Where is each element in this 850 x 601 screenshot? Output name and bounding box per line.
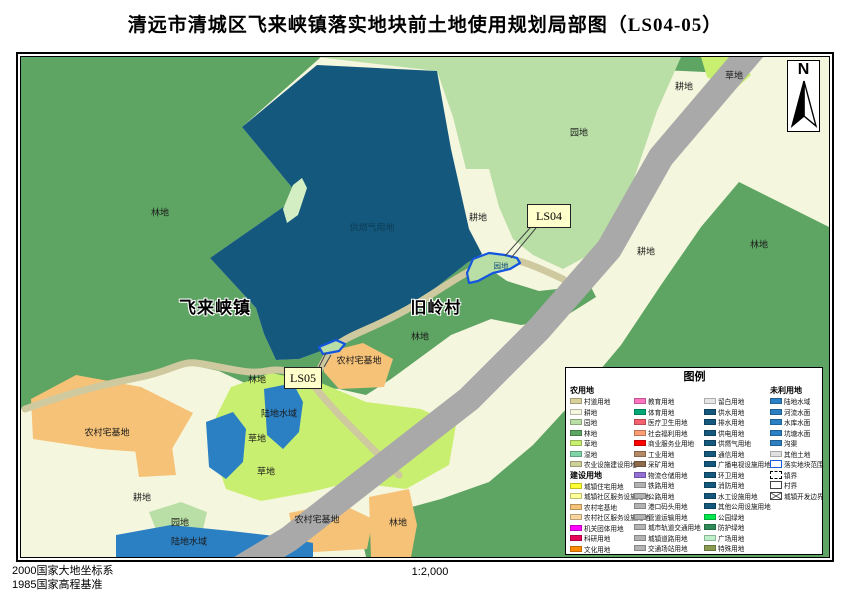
legend-item-label: 草地 xyxy=(584,438,597,448)
legend-swatch xyxy=(704,545,716,551)
legend-swatch xyxy=(570,440,582,446)
legend-item-label: 科研用地 xyxy=(584,533,610,543)
legend-item-label: 通信用地 xyxy=(718,449,744,459)
legend-item: 草地 xyxy=(570,438,632,449)
legend-item-label: 村界 xyxy=(784,480,797,490)
legend-swatch xyxy=(770,419,782,425)
legend-item: 其他公用设施用地 xyxy=(704,501,768,512)
region-rural-housing-south2 xyxy=(369,489,417,557)
legend-swatch xyxy=(570,504,582,510)
legend-swatch xyxy=(570,451,582,457)
legend-item: 公园绿地 xyxy=(704,512,768,523)
legend-item-label: 河流水面 xyxy=(784,407,810,417)
legend-item: 留白用地 xyxy=(704,396,768,407)
legend-swatch xyxy=(770,398,782,404)
legend-item-label: 陆地水域 xyxy=(784,396,810,406)
legend-swatch xyxy=(770,460,782,468)
legend-swatch xyxy=(634,503,646,509)
legend-swatch xyxy=(634,535,646,541)
legend-item: 坑塘水面 xyxy=(770,428,826,439)
legend-item-label: 港口码头用地 xyxy=(648,501,688,511)
legend-swatch xyxy=(634,430,646,436)
legend-item-label: 供水用地 xyxy=(718,407,744,417)
map-canvas: 林地供燃气用地耕地园地耕地草地林地耕地园地飞来峡镇旧岭村林地农村宅基地林地陆地水… xyxy=(20,56,830,558)
legend-swatch xyxy=(634,493,646,499)
parcel-callout-ls05: LS05 xyxy=(284,367,322,389)
legend-swatch xyxy=(634,419,646,425)
legend-swatch xyxy=(704,535,716,541)
legend-section-header: 农用地 xyxy=(570,385,632,396)
legend-item: 商业服务业用地 xyxy=(634,438,702,449)
legend-swatch xyxy=(634,545,646,551)
legend-item: 公路用地 xyxy=(634,491,702,502)
legend-item: 城镇住宅用地 xyxy=(570,481,632,492)
legend-item-label: 采矿用地 xyxy=(648,459,674,469)
legend-item: 铁路用地 xyxy=(634,480,702,491)
legend-item-label: 交通场站用地 xyxy=(648,543,688,553)
legend-item: 城市轨道交通用地 xyxy=(634,522,702,533)
legend-item: 农村社区服务设施用地 xyxy=(570,512,632,523)
legend-swatch xyxy=(704,419,716,425)
legend-item: 陆地水域 xyxy=(770,396,826,407)
legend-item-label: 其他土地 xyxy=(784,449,810,459)
legend-item-label: 城镇道路用地 xyxy=(648,533,688,543)
legend-item: 交通场站用地 xyxy=(634,543,702,554)
legend-item-label: 商业服务业用地 xyxy=(648,438,694,448)
legend-swatch xyxy=(634,482,646,488)
legend-swatch xyxy=(704,493,716,499)
legend-swatch xyxy=(570,546,582,552)
legend-item: 排水用地 xyxy=(704,417,768,428)
legend-item: 供电用地 xyxy=(704,428,768,439)
legend-item: 城镇开发边界 xyxy=(770,491,826,502)
legend-item-label: 物流仓储用地 xyxy=(648,470,688,480)
legend-swatch xyxy=(570,409,582,415)
legend-swatch xyxy=(570,493,582,499)
legend-swatch xyxy=(570,430,582,436)
legend-swatch xyxy=(704,398,716,404)
legend-item-label: 城镇住宅用地 xyxy=(584,481,624,491)
legend-item-label: 公园绿地 xyxy=(718,512,744,522)
legend-item-label: 排水用地 xyxy=(718,417,744,427)
legend-item-label: 园地 xyxy=(584,417,597,427)
legend-item-label: 沟渠 xyxy=(784,438,797,448)
legend-item-label: 机关团体用地 xyxy=(584,523,624,533)
legend-item: 镇界 xyxy=(770,470,826,481)
legend-swatch xyxy=(770,409,782,415)
legend-item: 供水用地 xyxy=(704,407,768,418)
legend-item-label: 特殊用地 xyxy=(718,543,744,553)
legend-swatch xyxy=(770,451,782,457)
legend-swatch xyxy=(770,440,782,446)
legend-item-label: 教育用地 xyxy=(648,396,674,406)
legend-item: 管道运输用地 xyxy=(634,512,702,523)
legend-swatch xyxy=(704,482,716,488)
legend-item-label: 广场用地 xyxy=(718,533,744,543)
legend-item: 落实地块范围 xyxy=(770,459,826,470)
legend-swatch xyxy=(570,525,582,531)
legend-column-4: 未利用地陆地水域河流水面水库水面坑塘水面沟渠其他土地落实地块范围镇界村界城镇开发… xyxy=(770,385,826,554)
legend-swatch xyxy=(570,483,582,489)
legend-swatch xyxy=(634,398,646,404)
legend-item: 村道用地 xyxy=(570,396,632,407)
legend-swatch xyxy=(634,409,646,415)
legend-swatch xyxy=(570,461,582,467)
legend-item-label: 铁路用地 xyxy=(648,480,674,490)
legend-item: 湿地 xyxy=(570,449,632,460)
legend-item: 农业设施建设用地 xyxy=(570,459,632,470)
legend-item-label: 农业设施建设用地 xyxy=(584,459,637,469)
legend-item: 采矿用地 xyxy=(634,459,702,470)
legend-column-1: 农用地村道用地耕地园地林地草地湿地农业设施建设用地建设用地城镇住宅用地城镇社区服… xyxy=(570,385,632,554)
legend-item: 通信用地 xyxy=(704,449,768,460)
datum-line2: 1985国家高程基准 xyxy=(12,578,113,592)
legend-item-label: 农村宅基地 xyxy=(584,502,617,512)
legend-item: 科研用地 xyxy=(570,533,632,544)
legend-item: 沟渠 xyxy=(770,438,826,449)
legend-item: 广场用地 xyxy=(704,533,768,544)
legend-item-label: 广播电视设施用地 xyxy=(718,459,771,469)
legend-item: 工业用地 xyxy=(634,449,702,460)
legend-item: 防护绿地 xyxy=(704,522,768,533)
legend-swatch xyxy=(570,514,582,520)
legend-item: 水工设施用地 xyxy=(704,491,768,502)
legend-title: 图例 xyxy=(570,371,819,385)
legend-item: 体育用地 xyxy=(634,407,702,418)
legend-item-label: 医疗卫生用地 xyxy=(648,417,688,427)
legend-item: 园地 xyxy=(570,417,632,428)
parcel-callout-ls04: LS04 xyxy=(527,204,571,228)
legend-item-label: 体育用地 xyxy=(648,407,674,417)
legend-item: 供燃气用地 xyxy=(704,438,768,449)
legend-swatch xyxy=(634,514,646,520)
legend-item: 机关团体用地 xyxy=(570,523,632,534)
legend-swatch xyxy=(570,398,582,404)
map-scale: 1:2,000 xyxy=(380,566,480,578)
legend-swatch xyxy=(770,430,782,436)
legend-swatch xyxy=(770,492,782,500)
legend-swatch xyxy=(634,451,646,457)
legend-swatch xyxy=(634,472,646,478)
legend-item-label: 供电用地 xyxy=(718,428,744,438)
legend-swatch xyxy=(704,514,716,520)
legend-swatch xyxy=(704,461,716,467)
legend-item: 文化用地 xyxy=(570,544,632,555)
legend-columns: 农用地村道用地耕地园地林地草地湿地农业设施建设用地建设用地城镇住宅用地城镇社区服… xyxy=(570,385,819,554)
legend-item-label: 留白用地 xyxy=(718,396,744,406)
legend-swatch xyxy=(704,451,716,457)
legend-item-label: 社会福利用地 xyxy=(648,428,688,438)
legend-item-label: 水库水面 xyxy=(784,417,810,427)
legend-swatch xyxy=(770,471,782,479)
legend-item: 社会福利用地 xyxy=(634,428,702,439)
legend-item-label: 落实地块范围 xyxy=(784,459,824,469)
legend-item: 教育用地 xyxy=(634,396,702,407)
north-needle-icon xyxy=(789,79,819,129)
datum-line1: 2000国家大地坐标系 xyxy=(12,564,113,578)
legend-section-header: 未利用地 xyxy=(770,385,826,396)
legend-item: 农村宅基地 xyxy=(570,502,632,513)
legend-item-label: 城镇开发边界 xyxy=(784,491,824,501)
legend-spacer xyxy=(704,385,768,396)
legend-item: 其他土地 xyxy=(770,449,826,460)
legend-item-label: 坑塘水面 xyxy=(784,428,810,438)
legend-item: 城镇社区服务设施用地 xyxy=(570,491,632,502)
legend-item-label: 林地 xyxy=(584,428,597,438)
legend-item-label: 公路用地 xyxy=(648,491,674,501)
legend-swatch xyxy=(704,440,716,446)
legend-item: 村界 xyxy=(770,480,826,491)
legend-item: 水库水面 xyxy=(770,417,826,428)
legend-item: 城镇道路用地 xyxy=(634,533,702,544)
legend-item-label: 城市轨道交通用地 xyxy=(648,522,701,532)
datum-info: 2000国家大地坐标系 1985国家高程基准 xyxy=(12,564,113,592)
planning-map-page: 清远市清城区飞来峡镇落实地块前土地使用规划局部图（LS04-05） xyxy=(0,0,850,601)
map-frame: 林地供燃气用地耕地园地耕地草地林地耕地园地飞来峡镇旧岭村林地农村宅基地林地陆地水… xyxy=(16,52,834,562)
north-label: N xyxy=(788,61,819,79)
legend-column-3: 留白用地供水用地排水用地供电用地供燃气用地通信用地广播电视设施用地环卫用地消防用… xyxy=(704,385,768,554)
legend-item-label: 村道用地 xyxy=(584,396,610,406)
legend-swatch xyxy=(770,481,782,489)
legend-swatch xyxy=(634,440,646,446)
legend-item-label: 水工设施用地 xyxy=(718,491,758,501)
legend-item-label: 管道运输用地 xyxy=(648,512,688,522)
legend-item: 耕地 xyxy=(570,407,632,418)
legend-item: 消防用地 xyxy=(704,480,768,491)
legend-item-label: 镇界 xyxy=(784,470,797,480)
legend-item: 河流水面 xyxy=(770,407,826,418)
legend-item-label: 消防用地 xyxy=(718,480,744,490)
legend-item-label: 耕地 xyxy=(584,407,597,417)
legend-item: 医疗卫生用地 xyxy=(634,417,702,428)
legend-spacer xyxy=(634,385,702,396)
legend-swatch xyxy=(634,461,646,467)
legend-item: 港口码头用地 xyxy=(634,501,702,512)
legend-item-label: 文化用地 xyxy=(584,544,610,554)
legend-swatch xyxy=(570,419,582,425)
legend-swatch xyxy=(704,503,716,509)
legend-item: 物流仓储用地 xyxy=(634,470,702,481)
legend-swatch xyxy=(704,524,716,530)
legend-swatch xyxy=(704,472,716,478)
region-rural-housing-west2 xyxy=(134,439,176,477)
legend-column-2: 教育用地体育用地医疗卫生用地社会福利用地商业服务业用地工业用地采矿用地物流仓储用… xyxy=(634,385,702,554)
page-title: 清远市清城区飞来峡镇落实地块前土地使用规划局部图（LS04-05） xyxy=(0,10,850,37)
legend: 图例 农用地村道用地耕地园地林地草地湿地农业设施建设用地建设用地城镇住宅用地城镇… xyxy=(565,367,823,555)
legend-item-label: 工业用地 xyxy=(648,449,674,459)
legend-item: 广播电视设施用地 xyxy=(704,459,768,470)
legend-swatch xyxy=(634,524,646,530)
legend-item: 林地 xyxy=(570,428,632,439)
legend-item: 环卫用地 xyxy=(704,470,768,481)
legend-swatch xyxy=(704,430,716,436)
legend-swatch xyxy=(570,535,582,541)
legend-item-label: 防护绿地 xyxy=(718,522,744,532)
legend-item-label: 湿地 xyxy=(584,449,597,459)
north-arrow: N xyxy=(787,60,820,132)
legend-item-label: 供燃气用地 xyxy=(718,438,751,448)
legend-item: 特殊用地 xyxy=(704,543,768,554)
legend-item-label: 环卫用地 xyxy=(718,470,744,480)
legend-section-header: 建设用地 xyxy=(570,470,632,481)
legend-swatch xyxy=(704,409,716,415)
legend-item-label: 其他公用设施用地 xyxy=(718,501,771,511)
